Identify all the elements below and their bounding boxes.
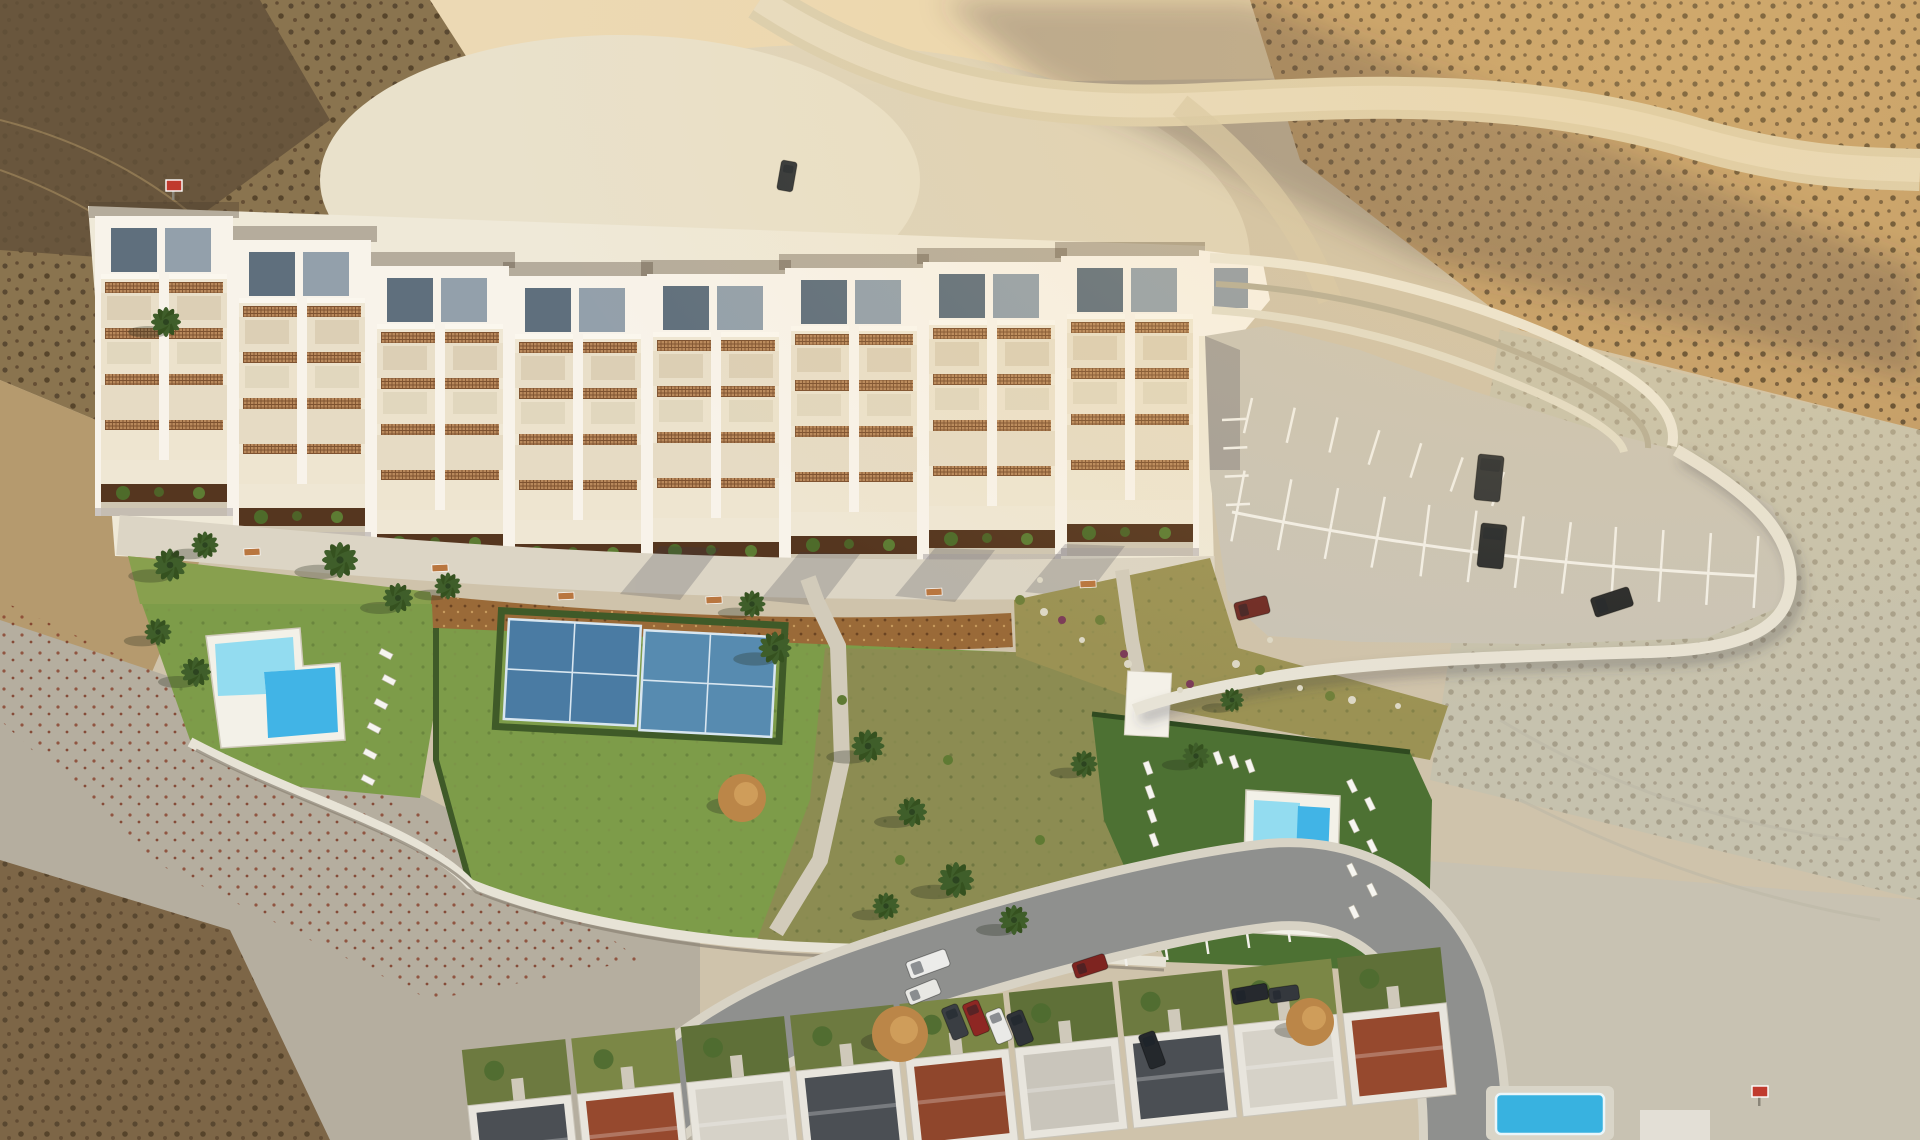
sunlight-overlay: [0, 0, 1920, 1140]
scene-canvas: [0, 0, 1920, 1140]
aerial-site-photo: [0, 0, 1920, 1140]
